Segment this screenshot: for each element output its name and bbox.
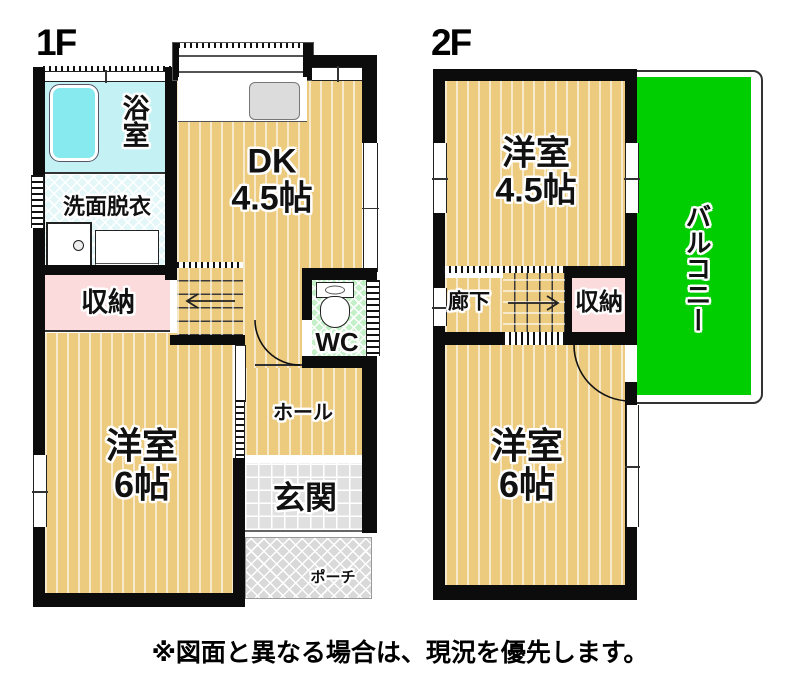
stove xyxy=(249,82,300,120)
wall xyxy=(362,368,377,533)
toilet-bowl xyxy=(320,296,350,328)
vanity-sink xyxy=(95,230,159,267)
entrance-label: 玄関 xyxy=(273,481,337,516)
bedroom-window-1f xyxy=(33,455,47,527)
stairs-opening-comb xyxy=(503,332,565,345)
bedroom45-line1: 洋室 xyxy=(495,135,576,172)
wc-window xyxy=(366,280,380,356)
wall xyxy=(433,585,637,600)
porch-label: ポーチ xyxy=(310,570,355,586)
bedroom45-line2: 4.5帖 xyxy=(495,172,576,209)
bathroom-window xyxy=(45,71,165,82)
storage-2f-label: 収納 xyxy=(575,290,623,316)
dk-top-window xyxy=(312,67,362,81)
wall xyxy=(362,64,377,143)
floorplan-canvas: 1F xyxy=(0,0,800,689)
dk-label-line1: DK xyxy=(231,143,312,180)
bathroom-label: 浴室 xyxy=(118,94,147,148)
door-threshold xyxy=(255,364,302,366)
bedroom6-2f-line2: 6帖 xyxy=(491,466,563,505)
bedroom6-1f-label: 洋室 6帖 xyxy=(106,427,178,505)
storage-1f-label: 収納 xyxy=(81,288,135,317)
stairs-doorway-comb xyxy=(177,262,243,268)
washing-machine xyxy=(46,222,92,268)
wall xyxy=(173,43,179,80)
corridor-label: 廊下 xyxy=(448,292,490,315)
floor-2f-label: 2F xyxy=(431,22,470,64)
stairs-2f xyxy=(503,268,565,335)
hall-upper-floor xyxy=(243,272,302,368)
floor-1f-label: 1F xyxy=(36,22,75,64)
dk-label: DK 4.5帖 xyxy=(231,143,312,216)
dk-side-window xyxy=(363,143,378,272)
wall xyxy=(565,278,572,332)
wall xyxy=(302,356,377,368)
balcony-door-opening xyxy=(625,345,637,382)
wall xyxy=(33,265,170,275)
bedroom6-1f-line2: 6帖 xyxy=(106,466,178,505)
bay-window-line xyxy=(173,71,313,73)
washroom-label: 洗面脱衣 xyxy=(63,195,151,219)
corridor-window xyxy=(433,288,447,326)
bay-window-line xyxy=(173,55,313,57)
bedroom45-2f-label: 洋室 4.5帖 xyxy=(495,135,576,208)
washroom-window xyxy=(31,175,44,228)
entrance-edge xyxy=(245,530,362,532)
wall xyxy=(165,67,177,280)
wall xyxy=(302,280,312,320)
hall-label: ホール xyxy=(273,403,333,425)
sliding-door xyxy=(235,345,246,402)
disclaimer-text: ※図面と異なる場合は、現況を優先します。 xyxy=(0,633,800,669)
dk-label-line2: 4.5帖 xyxy=(231,180,312,217)
wall xyxy=(33,593,245,607)
bathtub xyxy=(50,85,98,161)
wall xyxy=(170,335,245,345)
eaves-comb xyxy=(178,43,303,48)
bedroom6-1f-line1: 洋室 xyxy=(106,427,178,466)
stairs-1f xyxy=(177,268,243,335)
wall-line xyxy=(45,172,165,174)
wall xyxy=(565,266,637,278)
wall xyxy=(302,268,377,280)
bedroom45-window-right xyxy=(625,143,639,213)
entrance-step xyxy=(245,455,362,463)
bedroom45-window-left xyxy=(433,143,447,213)
doorway-comb xyxy=(235,400,245,458)
wall-line xyxy=(45,330,170,332)
wall xyxy=(233,458,245,593)
doorway-comb xyxy=(443,266,565,273)
bedroom6-2f-line1: 洋室 xyxy=(491,427,563,466)
bay-window xyxy=(172,42,314,81)
wc-label: WC xyxy=(315,328,358,356)
bedroom6-window-2f xyxy=(626,405,639,527)
wall xyxy=(433,69,637,81)
bedroom6-2f-label: 洋室 6帖 xyxy=(491,427,563,505)
balcony-label: バルコニー xyxy=(683,203,711,333)
